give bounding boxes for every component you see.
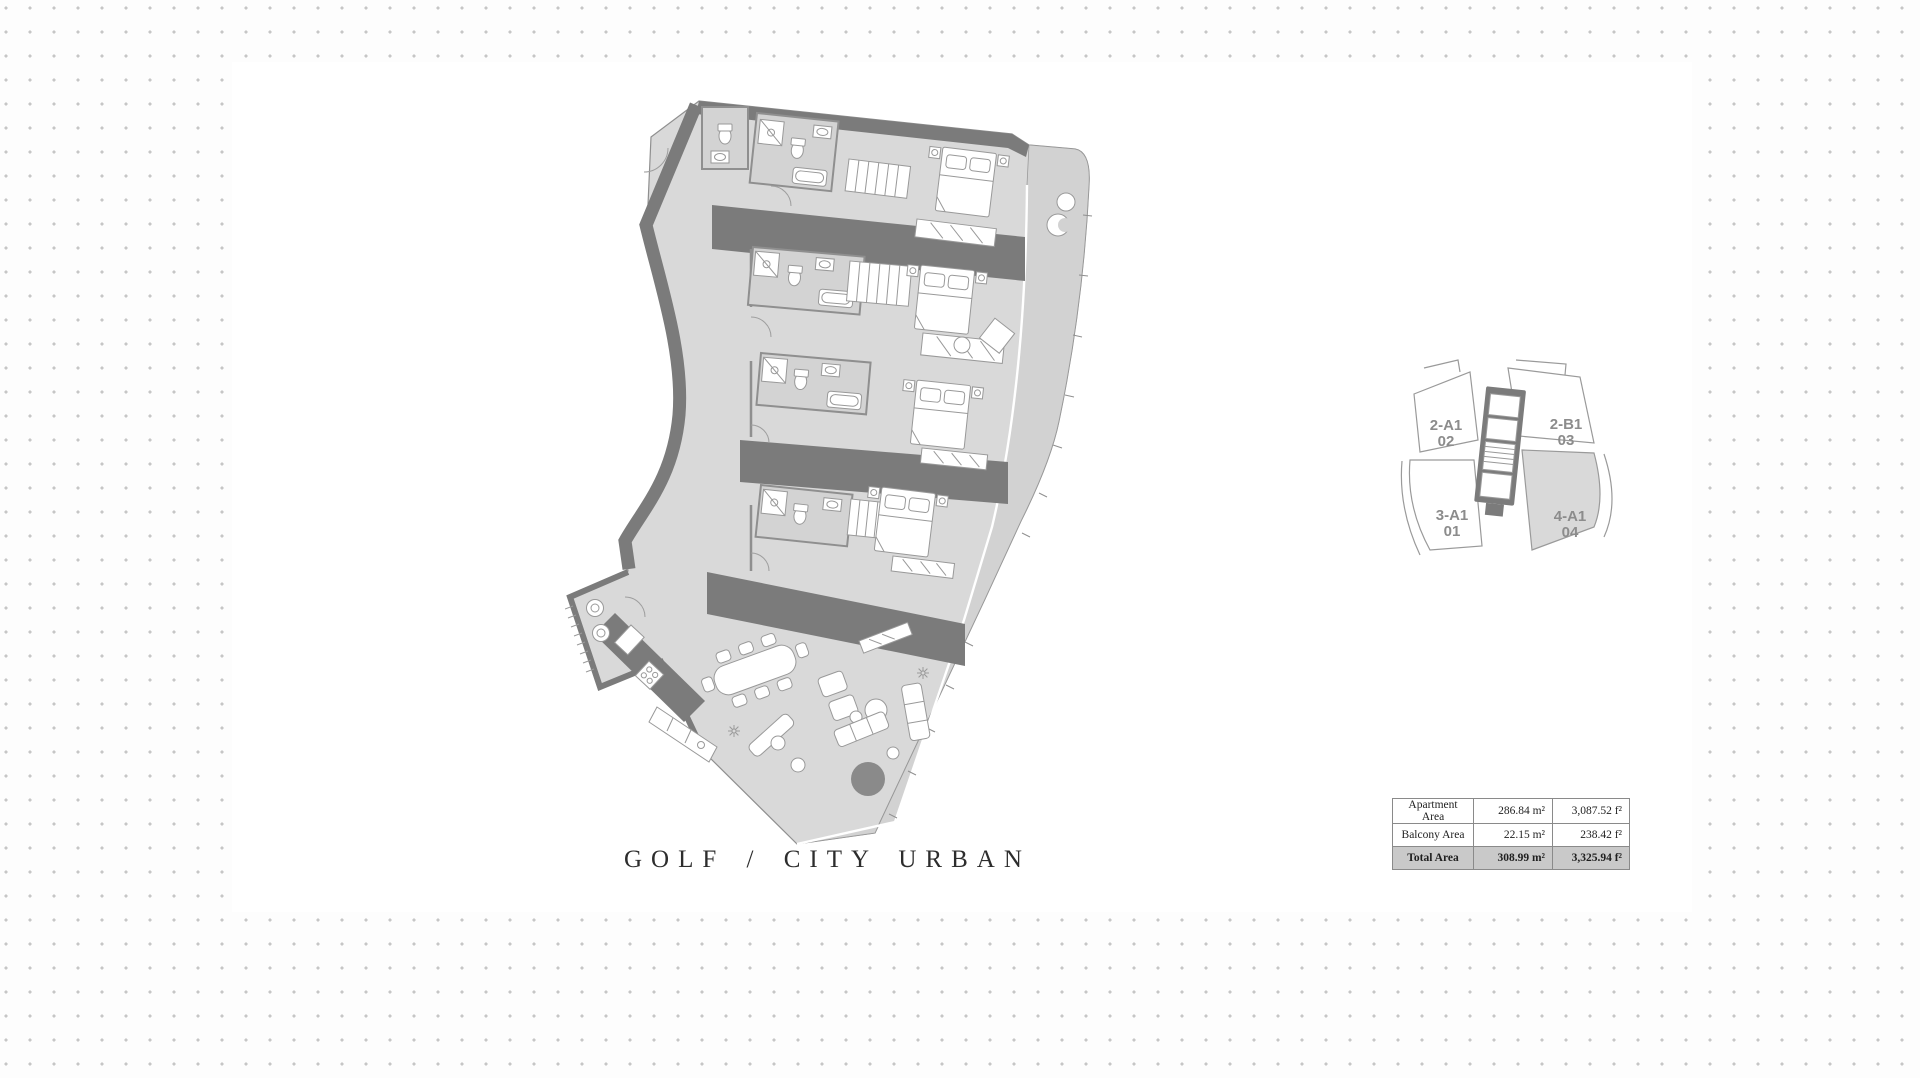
table-row: Balcony Area 22.15 m² 238.42 f² (1393, 824, 1630, 847)
unit-label-3A1: 3-A1 (1436, 507, 1469, 524)
bathroom-master (750, 113, 839, 191)
floor-lamp (791, 758, 805, 772)
bathroom (756, 353, 870, 414)
wardrobe (845, 159, 910, 198)
side-pouf (887, 747, 899, 759)
plan-caption: GOLF / CITY URBAN (624, 846, 1024, 874)
floor-plan (565, 85, 1110, 845)
unit-label-2A1: 2-A1 (1430, 417, 1463, 434)
balcony-stool (771, 736, 785, 750)
metric-value: 286.84 m² (1474, 799, 1553, 824)
table-row-total: Total Area 308.99 m² 3,325.94 f² (1393, 847, 1630, 870)
imperial-value: 3,087.52 f² (1553, 799, 1630, 824)
plant-icon (917, 667, 929, 679)
unit-label-2B1: 2-B1 (1550, 416, 1583, 433)
imperial-value: 3,325.94 f² (1553, 847, 1630, 870)
side-table (954, 337, 970, 353)
washer-icon (587, 600, 604, 617)
coffee-table (851, 762, 885, 796)
unit-number-01: 01 (1444, 523, 1461, 540)
table-row: Apartment Area 286.84 m² 3,087.52 f² (1393, 799, 1630, 824)
row-label: Apartment Area (1393, 799, 1474, 824)
bathroom (748, 247, 865, 315)
metric-value: 308.99 m² (1474, 847, 1553, 870)
unit-number-02: 02 (1438, 433, 1455, 450)
dryer-icon (593, 625, 610, 642)
canvas: GOLF / CITY URBAN 2-A1 02 2-B1 (0, 0, 1920, 1078)
bathroom-entry (702, 107, 748, 169)
key-plan: 2-A1 02 2-B1 03 3-A1 01 4-A1 04 (1398, 358, 1622, 604)
area-table: Apartment Area 286.84 m² 3,087.52 f² Bal… (1392, 798, 1630, 870)
building-core (1473, 386, 1526, 517)
plant-icon (728, 725, 740, 737)
row-label: Total Area (1393, 847, 1474, 870)
bathroom (756, 485, 853, 546)
metric-value: 22.15 m² (1474, 824, 1553, 847)
unit-number-03: 03 (1558, 432, 1575, 449)
wardrobe (847, 261, 912, 306)
row-label: Balcony Area (1393, 824, 1474, 847)
unit-number-04: 04 (1562, 524, 1579, 541)
imperial-value: 238.42 f² (1553, 824, 1630, 847)
unit-label-4A1: 4-A1 (1554, 508, 1587, 525)
